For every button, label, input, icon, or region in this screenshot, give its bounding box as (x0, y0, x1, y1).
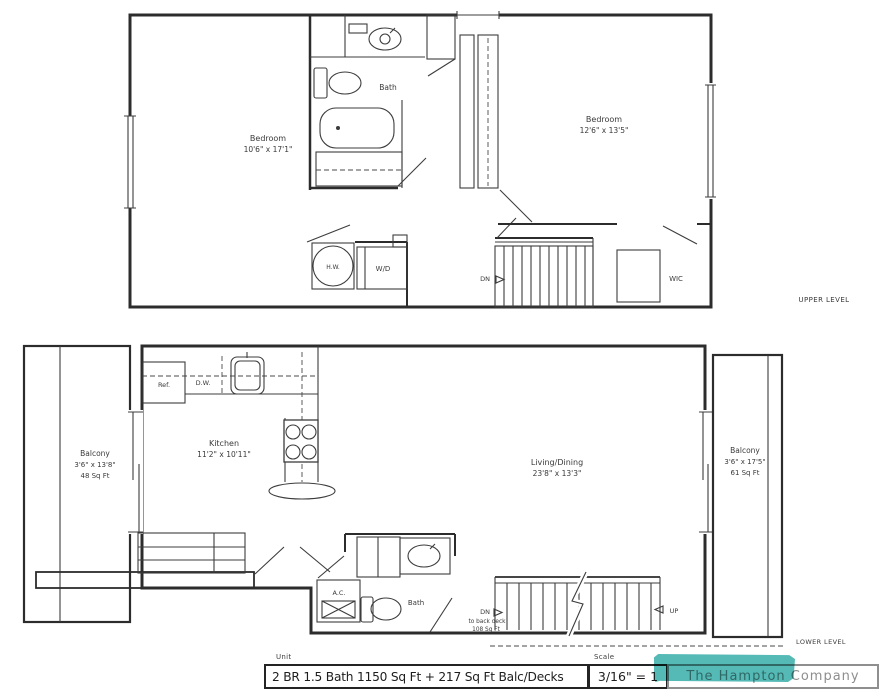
peninsula-end (269, 483, 335, 499)
dn-note-2: 108 Sq Ft (472, 627, 500, 633)
living-dining-dims: 23'8" x 13'3" (533, 469, 582, 478)
hw-label: H.W. (326, 264, 340, 271)
lower-level-caption: LOWER LEVEL (796, 638, 846, 646)
entry-step (36, 572, 254, 588)
powder-door-icon (430, 598, 452, 632)
upper-dn-label: DN (480, 275, 490, 283)
upper-window-right-icon (705, 83, 716, 199)
lower-window-left-icon (128, 410, 143, 534)
upper-toilet-icon (314, 68, 361, 98)
balcony-left-dims: 3'6" x 13'8" (74, 461, 115, 469)
powder-bath (318, 534, 455, 632)
bedroom-right-dims: 12'6" x 13'5" (580, 126, 629, 135)
dn-note-1: to back deck (468, 619, 506, 625)
stove-icon (284, 420, 318, 462)
ref-label: Ref. (158, 381, 170, 389)
lower-dn-label: DN (480, 608, 490, 616)
dw-label: D.W. (196, 379, 211, 387)
wic-label: WIC (669, 275, 683, 283)
balcony-right (713, 355, 782, 637)
living-dining-label: Living/Dining (531, 458, 583, 467)
bathtub-icon (320, 100, 402, 188)
ac-label: A.C. (332, 589, 345, 597)
utility-walls (355, 242, 407, 307)
vanity-counter (310, 15, 425, 57)
upper-sink-icon (369, 28, 401, 50)
washer-dryer-icon (357, 235, 407, 289)
entry-door-icon (255, 547, 330, 574)
upper-window-top-icon (457, 11, 499, 19)
upper-outer-wall (130, 15, 711, 307)
balcony-right-dims: 3'6" x 17'5" (724, 458, 765, 466)
lower-outer-wall (142, 346, 705, 633)
hw-door-icon (307, 225, 350, 242)
kitchen-sink-icon (231, 352, 264, 394)
kitchen-label: Kitchen (209, 439, 239, 448)
scale-value-text: 3/16" = 1 (598, 669, 658, 684)
lower-window-right-icon (699, 410, 712, 534)
stair-shaft (460, 35, 498, 188)
scale-field-label: Scale (594, 653, 614, 661)
upper-closet (427, 15, 455, 59)
vanity-box (349, 24, 367, 33)
closet-door-icon (428, 59, 455, 76)
balcony-right-label: Balcony (730, 446, 760, 455)
ac-closet-icon (317, 580, 360, 622)
lower-toilet-icon (361, 597, 401, 622)
upper-window-left-icon (124, 116, 136, 208)
balcony-right-area: 61 Sq Ft (730, 469, 759, 477)
kitchen-dims: 11'2" x 10'11" (197, 450, 251, 459)
wic-door-icon (663, 226, 697, 244)
bedroom-right-label: Bedroom (586, 115, 622, 124)
teal-watermark (654, 654, 795, 682)
lower-bath-label: Bath (408, 599, 424, 607)
bath-cabinet (316, 152, 402, 186)
hall-door-icon (500, 190, 532, 222)
upper-level-plan: Bedroom 10'6" x 17'1" Bedroom 12'6" x 13… (124, 11, 849, 307)
up-arrow-icon (655, 606, 663, 613)
dn-arrow-icon (496, 276, 504, 283)
wd-label: W/D (376, 265, 391, 273)
unit-description-text: 2 BR 1.5 Bath 1150 Sq Ft + 217 Sq Ft Bal… (272, 670, 564, 684)
up-label: UP (670, 607, 679, 615)
wic-closet (617, 250, 660, 302)
upper-stairs-icon (495, 218, 593, 307)
balcony-left-area: 48 Sq Ft (80, 472, 109, 480)
lower-stairs-icon (495, 572, 660, 636)
balcony-left-label: Balcony (80, 449, 110, 458)
bedroom-left-label: Bedroom (250, 134, 286, 143)
hall-door2-icon (318, 556, 344, 578)
floorplan-sheet: Bedroom 10'6" x 17'1" Bedroom 12'6" x 13… (0, 0, 883, 697)
lower-sink-icon (408, 544, 440, 567)
balcony-left (24, 346, 130, 622)
upper-level-caption: UPPER LEVEL (799, 296, 850, 304)
bedroom-left-dims: 10'6" x 17'1" (244, 145, 293, 154)
unit-field-label: Unit (276, 653, 291, 661)
lower-level-plan: Balcony 3'6" x 13'8" 48 Sq Ft Ref. D.W. … (24, 346, 846, 646)
upper-bath-label: Bath (379, 83, 397, 92)
floorplan-drawing: Bedroom 10'6" x 17'1" Bedroom 12'6" x 13… (0, 0, 883, 652)
unit-description: 2 BR 1.5 Bath 1150 Sq Ft + 217 Sq Ft Bal… (264, 664, 589, 689)
entry-closet (138, 533, 245, 573)
